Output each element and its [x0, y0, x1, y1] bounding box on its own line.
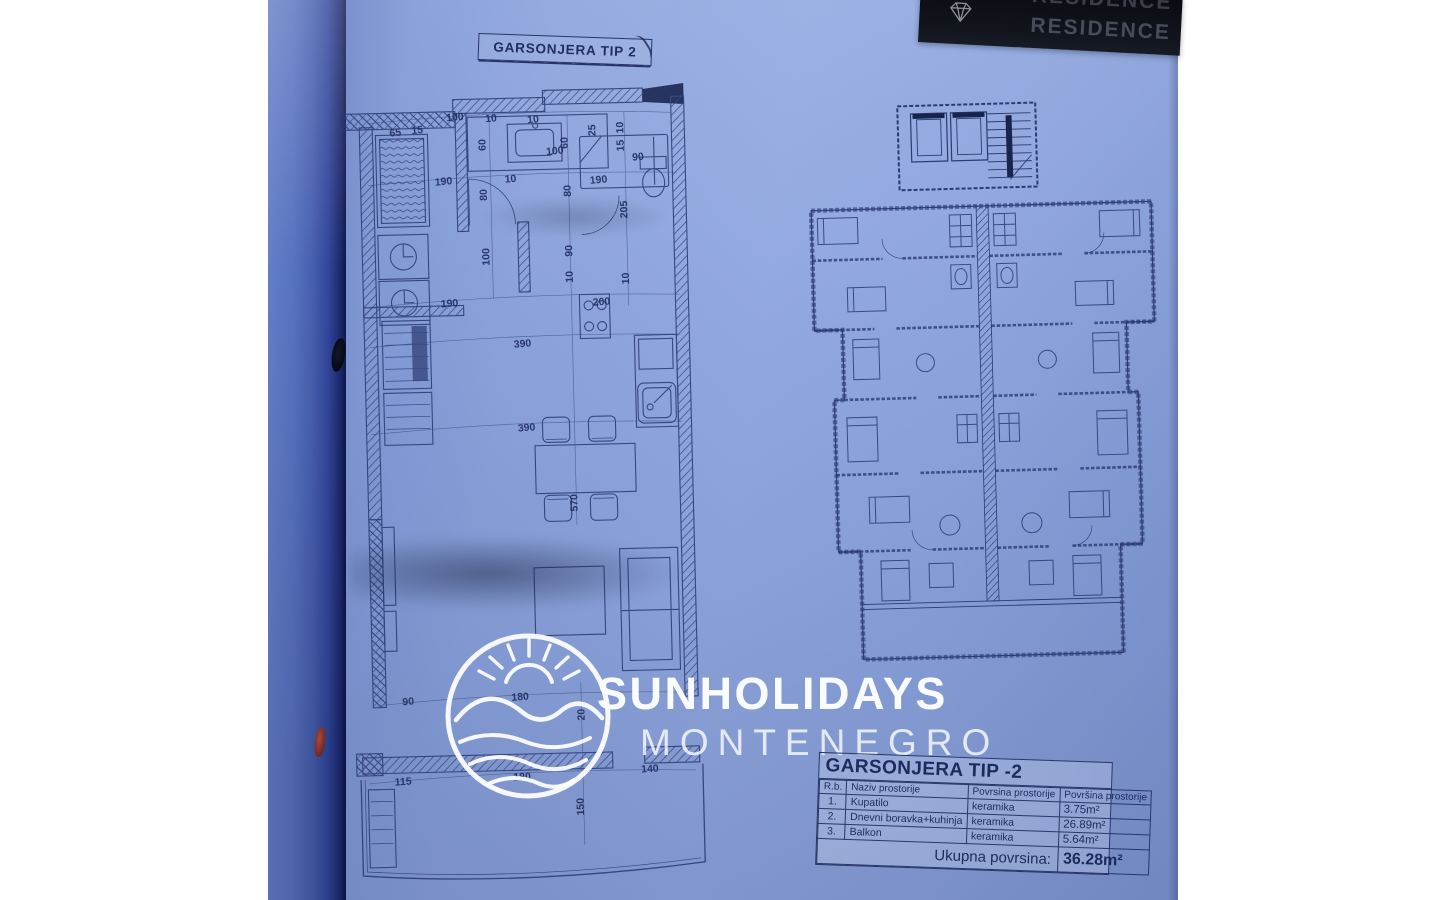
table-cell: 1.: [819, 793, 847, 809]
dimension-label: 25: [586, 124, 598, 136]
dimension-label: 80: [478, 189, 490, 201]
dimension-label: 100: [480, 248, 492, 266]
dimension-label: 10: [614, 122, 626, 134]
dimension-label: 190: [434, 175, 453, 189]
dimension-label: 180: [511, 691, 529, 704]
apartment-spec-table: GARSONJERA TIP -2 R.b.Naziv prostorijePo…: [815, 752, 1113, 875]
dimension-label: 200: [592, 295, 610, 308]
gem-icon: [945, 0, 976, 25]
studio-floor-plan: 6515100106010601002510159019080108019020…: [338, 82, 712, 890]
column-header: R.b.: [819, 779, 847, 794]
dimension-label: 90: [402, 695, 415, 708]
table-cell: 3.: [818, 823, 846, 839]
plan-title-label: GARSONJERA TIP 2: [493, 40, 637, 60]
dimension-label: 15: [615, 140, 627, 152]
dimension-label: 20: [575, 709, 587, 721]
building-floor-plan-drawing: [798, 91, 1174, 676]
banner-text-clipped: RESIDENCE: [1031, 0, 1173, 15]
dimension-label: 190: [440, 297, 458, 310]
dimension-label: 65: [389, 127, 402, 140]
dimension-label: 10: [620, 272, 632, 284]
dimension-label: 390: [513, 337, 531, 350]
dimension-label: 180: [513, 771, 531, 784]
banner-text: RESIDENCE: [1030, 14, 1172, 45]
dimension-label: 150: [575, 798, 587, 816]
dimension-label: 10: [504, 173, 517, 186]
dimension-label: 10: [485, 112, 498, 125]
dimension-label: 80: [562, 185, 574, 197]
table-cell: 2.: [818, 808, 846, 824]
dimension-label: 15: [411, 124, 424, 137]
dimension-label: 205: [618, 201, 630, 219]
dimension-label: 100: [446, 111, 465, 125]
total-value: 36.28m²: [1057, 847, 1150, 875]
book-spine: [268, 0, 348, 900]
dimension-label: 10: [564, 271, 576, 283]
dimension-label: 570: [568, 494, 580, 512]
dimension-label: 10: [527, 113, 540, 126]
dimension-label: 60: [477, 139, 489, 151]
dimension-label: 100: [546, 144, 565, 158]
dimension-label: 115: [394, 776, 412, 789]
building-floor-plan: [798, 91, 1174, 676]
book-page-photo: 6515100106010601002510159019080108019020…: [0, 0, 1440, 900]
spec-table-grid: R.b.Naziv prostorijePovrsina prostorijeP…: [816, 779, 1152, 876]
dimension-label: 390: [517, 421, 535, 434]
dimension-label: 90: [632, 151, 645, 164]
dimension-label: 90: [563, 245, 575, 257]
dimension-label: 140: [641, 763, 659, 776]
dimension-label: 190: [589, 173, 608, 187]
